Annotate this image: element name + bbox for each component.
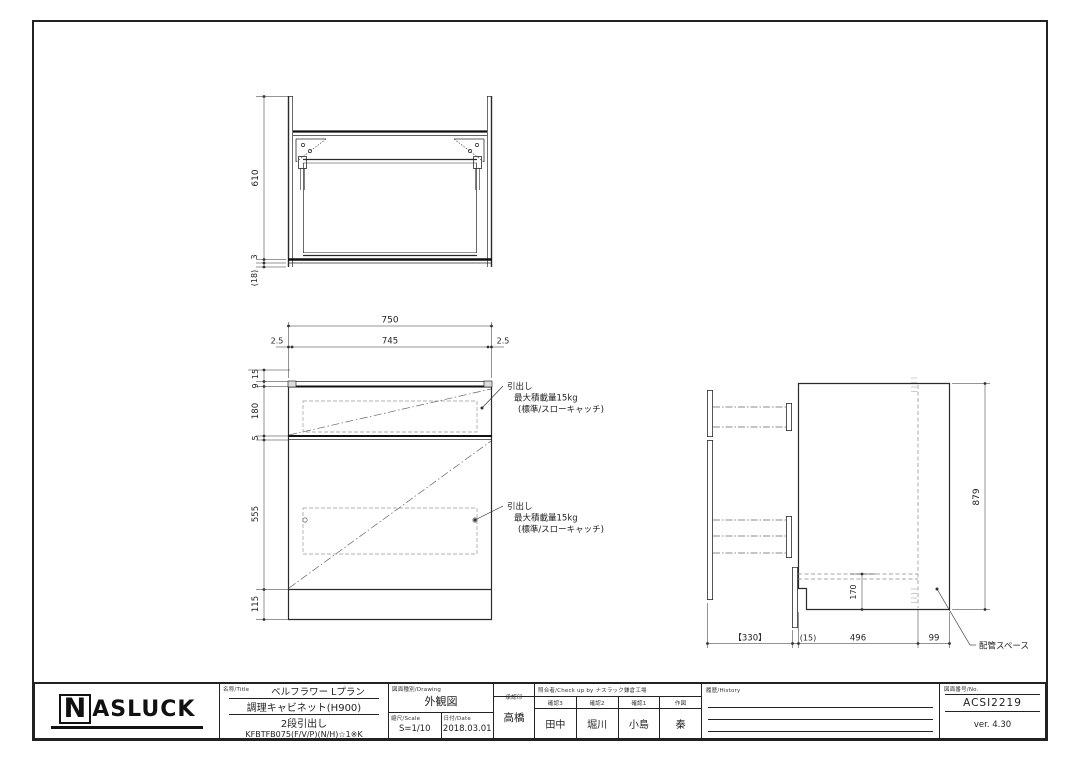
history-label: 履歴/History: [706, 686, 740, 694]
top-view: 610 3 (18): [250, 95, 492, 286]
check-label: 照合者/Check up by ナスラック鎌倉工場: [538, 686, 647, 694]
check-col-header: 確認3: [535, 697, 577, 708]
front-view: 750 2.5 745 2.5 15 9 180 5 555 115: [248, 316, 604, 621]
dim-top-depth: 610: [251, 169, 261, 186]
drawer-slide-rails: [713, 407, 786, 553]
dim-top-3: 3: [250, 254, 259, 259]
dim-879-lines: [952, 382, 990, 611]
date-cell: 日付/Date 2018.03.01: [442, 713, 494, 738]
dim-front-edge-right: 2.5: [497, 337, 510, 346]
date-value: 2018.03.01: [443, 724, 492, 738]
check-col-header: 確認1: [619, 697, 661, 708]
drawer-note-line1: 引出し: [507, 501, 533, 512]
dim-front-edge-left: 2.5: [271, 337, 284, 346]
micro-label-marks: [911, 378, 917, 603]
dim-front-9: 9: [251, 383, 260, 388]
drawing-number-label: 図面番号/No.: [944, 685, 979, 693]
dim-front-15: 15: [251, 369, 260, 379]
check-col-header: 作図: [660, 697, 701, 708]
dim-front-inner-width: 745: [382, 337, 398, 347]
drawer-note-line3: (標準/スローキャッチ): [518, 404, 604, 415]
pipe-space-label: 配管スペース: [979, 641, 1029, 652]
drawer-pullout: [707, 390, 792, 600]
drawing-number: ACSI2219: [940, 695, 1045, 711]
page-border: [33, 21, 1047, 740]
drawing-number-cell: 図面番号/No. ACSI2219 ver. 4.30: [940, 684, 1045, 738]
scale-label: 縮尺/Scale: [391, 714, 420, 722]
title-row-type: 2段引出し: [220, 715, 388, 730]
check-name: 秦: [660, 709, 701, 738]
title-row-series: 名称/Title ベルフラワー Lプラン: [220, 684, 388, 698]
logo-wordmark: ASLUCK: [92, 697, 195, 722]
date-label: 日付/Date: [444, 714, 471, 722]
left-gusset: [296, 139, 326, 162]
drawer-note-line3: (標準/スローキャッチ): [518, 524, 604, 535]
check-name: 田中: [535, 709, 577, 738]
dim-front-555: 555: [251, 506, 261, 522]
logo-cell: NASLUCK: [35, 684, 220, 738]
drawer-note-line2: 最大積載量15kg: [514, 513, 578, 524]
approval-cell: 承認印 高橋: [494, 684, 535, 738]
product-type: 2段引出し: [281, 715, 327, 730]
history-cell: 履歴/History: [702, 684, 940, 738]
title-row-name: 調理キャビネット(H900): [220, 699, 388, 714]
front-view-top-dimensions: [276, 322, 504, 378]
check-cell: 照合者/Check up by ナスラック鎌倉工場 確認3 確認2 確認1 作図…: [535, 684, 702, 738]
dim-side-height: 879: [972, 488, 982, 505]
dim-side-330: 【330】: [733, 634, 766, 644]
dim-side-170: 170: [849, 584, 858, 599]
product-code: KFBTFB075(F/V/P)(N/H)☆1※K: [245, 730, 362, 738]
check-name: 堀川: [577, 709, 619, 738]
scale-cell: 縮尺/Scale S=1/10: [389, 713, 442, 738]
side-view: 170 879 【330】 (15) 496 99: [706, 378, 1029, 652]
drawer-note-top: 引出し 最大積載量15kg (標準/スローキャッチ): [481, 381, 605, 415]
drawing-version: ver. 4.30: [940, 712, 1045, 738]
history-rule: [708, 708, 933, 720]
history-rule: [708, 696, 933, 708]
logo-letter-n: N: [59, 694, 92, 724]
approval-name: 高橋: [494, 697, 534, 738]
check-name: 小島: [619, 709, 661, 738]
dim-top-18: (18): [250, 270, 259, 286]
dim-side-496: 496: [850, 634, 866, 644]
drawing-canvas: 610 3 (18): [0, 0, 1080, 764]
dim-front-180: 180: [251, 403, 261, 419]
product-name: 調理キャビネット(H900): [247, 699, 361, 714]
drawing-cell: 図面種別/Drawing 外観図 縮尺/Scale S=1/10 日付/Date…: [389, 684, 494, 738]
history-rule: [708, 720, 933, 732]
dim-side-99: 99: [929, 634, 940, 644]
drawing-type: 外観図: [425, 693, 458, 712]
dim-front-5: 5: [251, 435, 260, 440]
title-cell: 名称/Title ベルフラワー Lプラン 調理キャビネット(H900) 2段引出…: [220, 684, 389, 738]
drawing-type-row: 図面種別/Drawing 外観図: [389, 684, 493, 713]
title-row-code: KFBTFB075(F/V/P)(N/H)☆1※K: [220, 730, 388, 738]
dim-side-15: (15): [800, 634, 816, 643]
scale-value: S=1/10: [399, 724, 431, 738]
title-block: NASLUCK 名称/Title ベルフラワー Lプラン 調理キャビネット(H9…: [33, 682, 1047, 740]
drawer-note-line1: 引出し: [507, 381, 533, 392]
product-series: ベルフラワー Lプラン: [243, 684, 365, 698]
drawer-note-bottom: 引出し 最大積載量15kg (標準/スローキャッチ): [474, 501, 605, 535]
drawer-note-line2: 最大積載量15kg: [514, 393, 578, 404]
name-label: 名称/Title: [223, 685, 249, 693]
nasluck-logo: NASLUCK: [51, 693, 204, 729]
drawing-label: 図面種別/Drawing: [392, 685, 441, 693]
dim-front-115: 115: [251, 596, 261, 612]
right-gusset: [454, 139, 484, 162]
check-col-header: 確認2: [577, 697, 619, 708]
dim-front-width: 750: [381, 316, 398, 326]
